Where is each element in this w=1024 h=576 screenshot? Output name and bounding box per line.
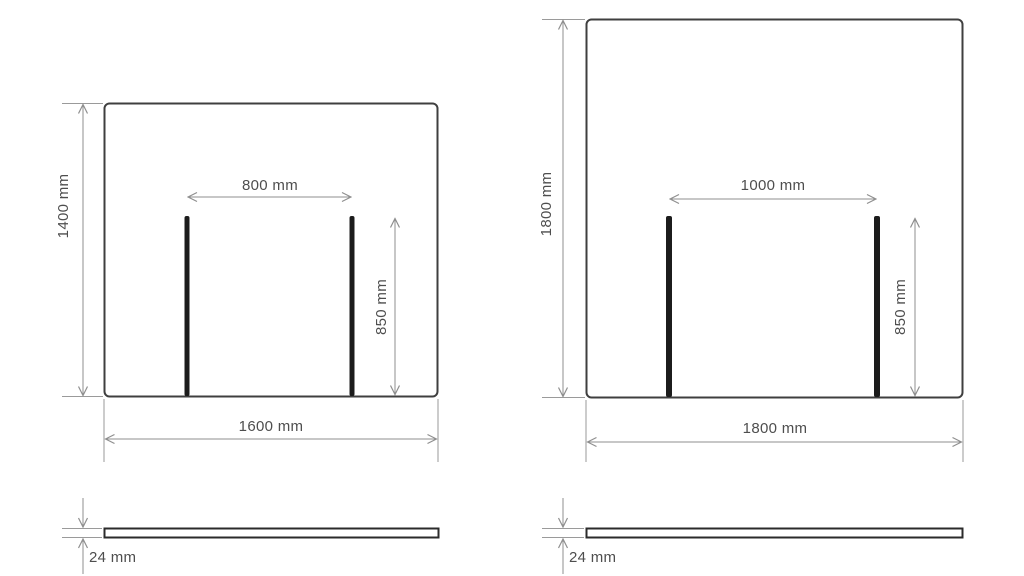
diagram-panel-1800x1800: 1800 mm 1000 mm 850 mm 1800 mm 24 mm: [538, 20, 963, 575]
leg-spacing-dimension-label: 800 mm: [242, 177, 298, 194]
height-dimension-label: 1400 mm: [55, 174, 72, 239]
panel-edge-profile: [587, 529, 963, 538]
panel-outline: [105, 104, 438, 397]
leg-height-dimension-label: 850 mm: [373, 279, 390, 335]
thickness-dimension-label: 24 mm: [89, 549, 136, 566]
leg-height-dimension-label: 850 mm: [892, 279, 909, 335]
panels-dimension-drawing: 1400 mm 800 mm 850 mm 1600 mm 24 mm 1800…: [0, 0, 1024, 576]
width-dimension-label: 1800 mm: [743, 420, 808, 437]
technical-drawing-canvas: 1400 mm 800 mm 850 mm 1600 mm 24 mm 1800…: [0, 0, 1024, 576]
leg-spacing-dimension-label: 1000 mm: [741, 177, 806, 194]
left-leg: [185, 216, 190, 396]
right-leg: [874, 216, 880, 397]
thickness-dimension-label: 24 mm: [569, 549, 616, 566]
diagram-panel-1600x1400: 1400 mm 800 mm 850 mm 1600 mm 24 mm: [55, 104, 439, 575]
panel-edge-profile: [105, 529, 439, 538]
right-leg: [350, 216, 355, 396]
width-dimension-label: 1600 mm: [239, 418, 304, 435]
height-dimension-label: 1800 mm: [538, 172, 555, 237]
panel-outline: [587, 20, 963, 398]
left-leg: [666, 216, 672, 397]
